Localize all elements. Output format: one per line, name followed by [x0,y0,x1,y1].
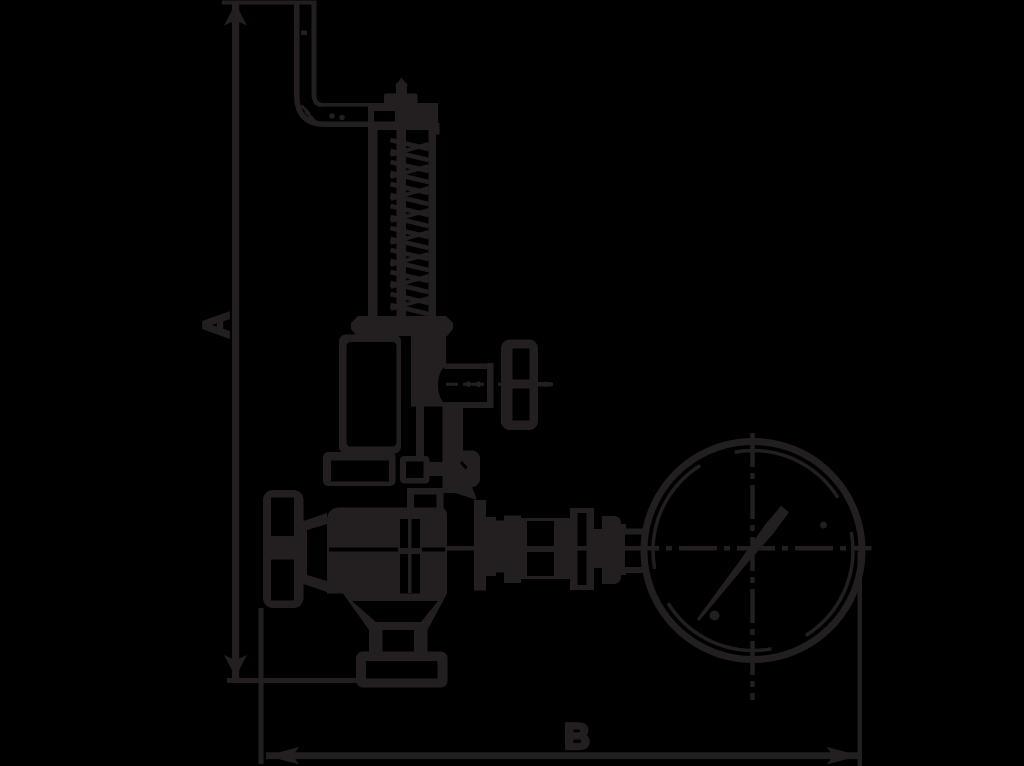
svg-text:B: B [564,718,589,757]
svg-text:A: A [196,312,237,338]
